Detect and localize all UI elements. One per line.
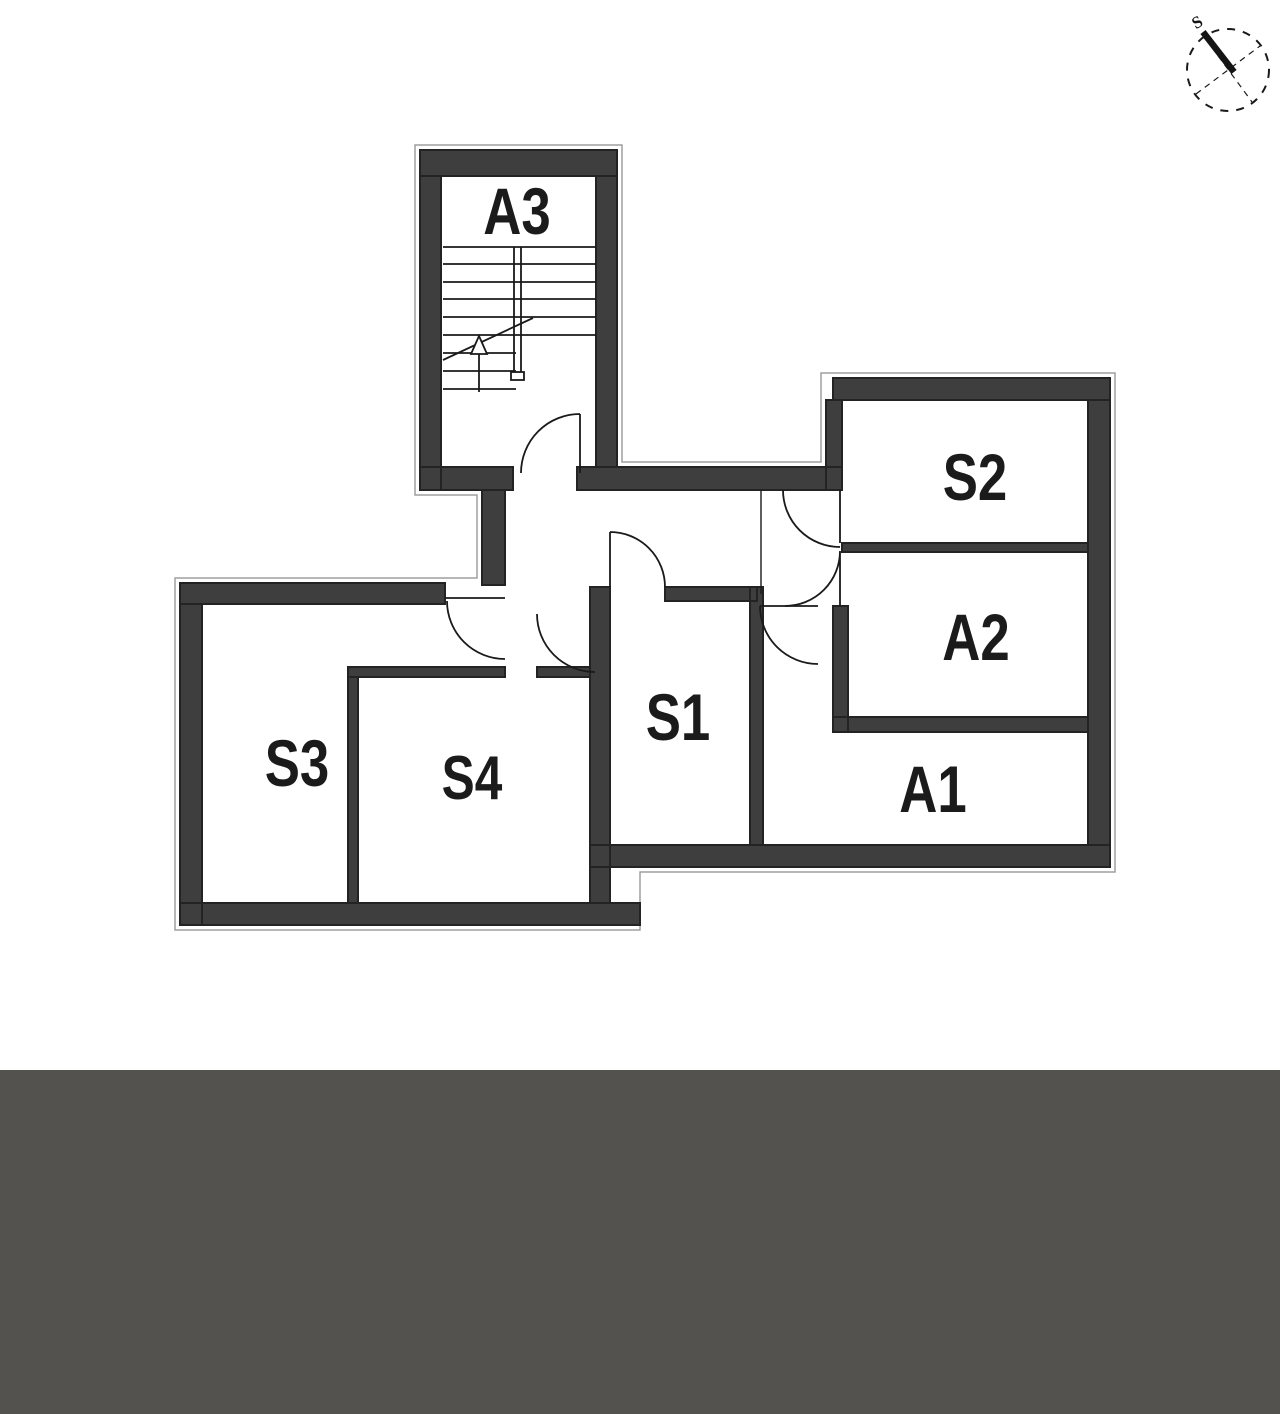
floorplan-page: A3 S2 A2 A1 S1 S3 S4 S PODRUM A1. Spremi… xyxy=(0,0,1280,1414)
walls xyxy=(180,150,1110,925)
room-label-s4: S4 xyxy=(442,743,503,813)
floorplan-drawing: A3 S2 A2 A1 S1 S3 S4 S xyxy=(0,0,1280,1070)
door-a1 xyxy=(760,606,818,664)
room-label-a1: A1 xyxy=(899,752,966,826)
door-s4 xyxy=(537,614,595,672)
staircase xyxy=(443,247,596,392)
compass-circle xyxy=(1187,29,1269,111)
info-bar: PODRUM A1. Spremište 12,40 m² A2. Spremi… xyxy=(0,1070,1280,1414)
compass: S xyxy=(1187,12,1269,111)
exterior-outline xyxy=(175,145,1115,930)
room-label-s1: S1 xyxy=(646,680,711,754)
room-label-a2: A2 xyxy=(942,600,1009,674)
room-label-s2: S2 xyxy=(943,440,1008,514)
door-s3 xyxy=(445,598,505,659)
door-stairwell xyxy=(521,414,580,473)
door-s2 xyxy=(783,490,840,547)
room-label-s3: S3 xyxy=(265,726,330,800)
door-s1 xyxy=(610,532,665,587)
compass-north-label: S xyxy=(1188,12,1206,33)
compass-axis-lines xyxy=(1196,38,1260,102)
compass-needle xyxy=(1203,32,1234,72)
room-label-a3: A3 xyxy=(483,174,550,248)
door-a2 xyxy=(785,551,840,606)
stair-stringer xyxy=(514,247,521,376)
